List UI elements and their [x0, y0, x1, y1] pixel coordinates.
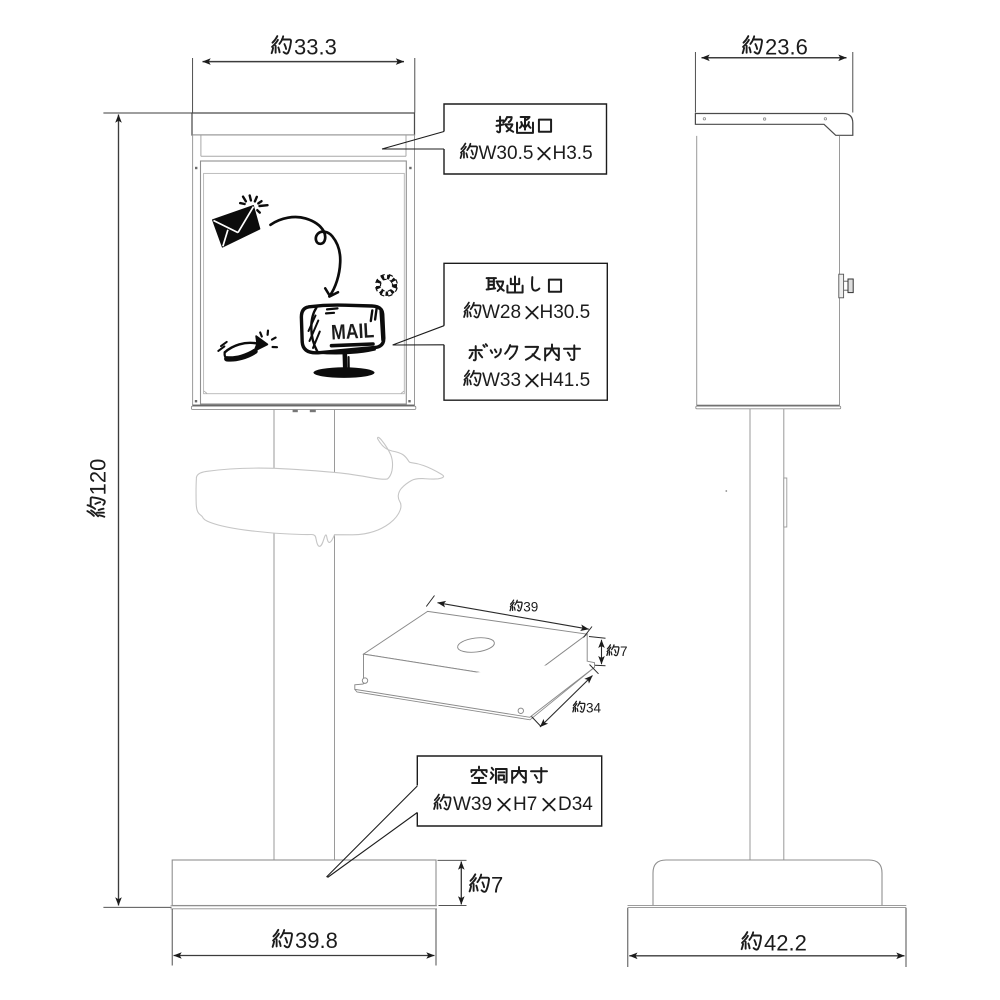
svg-text:W28: W28 [482, 302, 521, 323]
svg-text:H30.5: H30.5 [540, 302, 591, 323]
svg-text:23.6: 23.6 [765, 34, 808, 59]
svg-text:39: 39 [523, 599, 538, 614]
svg-text:42.2: 42.2 [764, 930, 807, 955]
svg-text:H41.5: H41.5 [540, 370, 591, 391]
svg-text:H7: H7 [513, 794, 537, 815]
svg-text:W39: W39 [453, 794, 492, 815]
svg-text:33.3: 33.3 [294, 34, 337, 59]
svg-text:W30.5: W30.5 [479, 143, 534, 164]
svg-text:39.8: 39.8 [295, 928, 338, 953]
svg-text:7: 7 [620, 644, 628, 659]
svg-text:H3.5: H3.5 [553, 143, 593, 164]
svg-text:D34: D34 [558, 794, 593, 815]
svg-text:W33: W33 [482, 370, 521, 391]
svg-text:34: 34 [586, 701, 602, 716]
svg-text:MAIL: MAIL [331, 319, 375, 344]
svg-text:120: 120 [86, 459, 111, 496]
svg-text:7: 7 [491, 873, 503, 898]
